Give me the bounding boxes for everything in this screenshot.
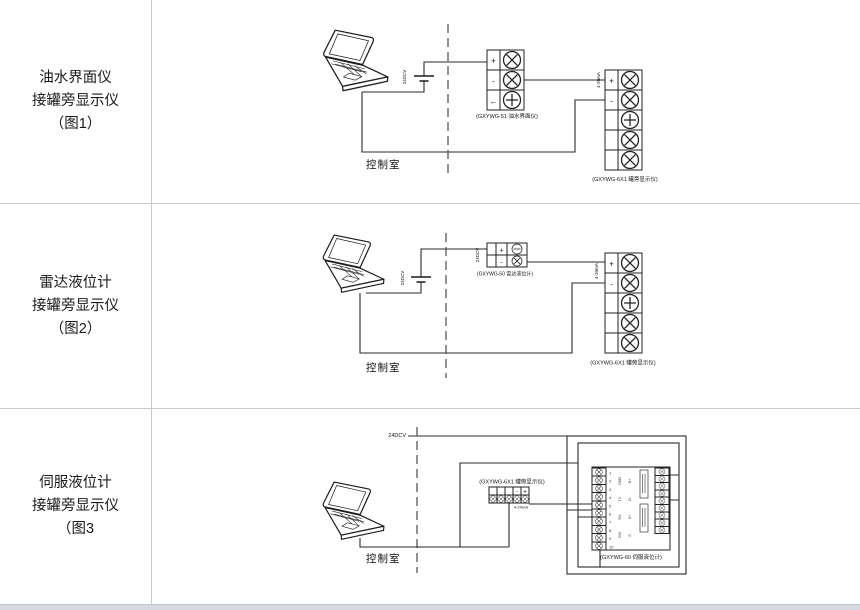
figure-2-title: 雷达液位计 接罐旁显示仪 （图2） (0, 204, 152, 408)
figure-1-title: 油水界面仪 接罐旁显示仪 （图1） (0, 0, 152, 203)
control-room-label: 控制室 (366, 361, 401, 374)
screw-icon (622, 92, 639, 109)
screw-icon (622, 112, 639, 129)
supply-voltage-label: 24DCV (388, 433, 406, 439)
screw-icon (596, 518, 603, 525)
svg-text:24V: 24V (618, 531, 622, 538)
screw-icon (596, 493, 603, 500)
terminal-cell (605, 313, 618, 333)
board-module-box (640, 470, 648, 498)
terminal-cell (487, 255, 496, 267)
signal-range-label: 4-20mA (594, 263, 599, 279)
svg-text:TX: TX (618, 496, 622, 501)
title-line: 伺服液位计 (39, 472, 112, 495)
screw-icon (622, 275, 639, 292)
terminal-cell (605, 130, 618, 150)
terminal-label-plus: + (523, 490, 527, 496)
terminal-cell (605, 293, 618, 313)
board-module-box (640, 504, 648, 532)
row-figure-1: 24DCV + - ← (GXYWG-51 油水界面仪) 4-20mA (0, 0, 860, 204)
terminal-label-minus: - (492, 77, 495, 86)
laptop-icon (324, 30, 388, 91)
screw-icon (622, 152, 639, 169)
title-line: （图1） (50, 113, 102, 136)
terminal-label-plus: + (609, 260, 614, 269)
display-terminal-block: + - (605, 253, 642, 353)
terminal-cell (505, 487, 513, 495)
screw-icon (504, 72, 521, 89)
screw-icon (596, 526, 603, 533)
battery-icon (411, 277, 431, 282)
servo-caption: (GXYWG-60 伺服液位计) (600, 553, 662, 561)
display-terminal-block: + - (605, 70, 642, 170)
screw-icon (512, 244, 522, 254)
terminal-label-plus: + (609, 77, 614, 86)
terminal-screw-strip-left (592, 468, 606, 550)
window-bottom-edge (0, 604, 860, 610)
terminal-cell (605, 110, 618, 130)
wire-laptop-loop (360, 463, 578, 547)
screw-icon (622, 255, 639, 272)
screw-icon (659, 491, 665, 497)
screw-icon (659, 483, 665, 489)
terminal-cell (605, 150, 618, 170)
terminal-label-ground: ← (490, 97, 498, 106)
screw-icon (622, 132, 639, 149)
title-line: 接罐旁显示仪 (32, 90, 119, 113)
wire-power-loop (362, 62, 605, 152)
screw-icon (659, 527, 665, 533)
screw-icon (659, 498, 665, 504)
screw-icon (659, 505, 665, 511)
control-room-label: 控制室 (366, 158, 401, 171)
transmitter-caption: (GXYWG-50 雷达液位计) (477, 271, 533, 278)
screw-icon (596, 543, 603, 550)
transmitter-caption: (GXYWG-51 油水界面仪) (476, 112, 538, 120)
svg-text:GND: GND (618, 477, 622, 485)
terminal-cell (497, 487, 505, 495)
transmitter-terminal-block: + - (487, 243, 527, 267)
display-caption: (GXYWG-6X1 罐旁显示仪) (592, 175, 658, 183)
screw-icon (659, 476, 665, 482)
title-line: 接罐旁显示仪 (32, 495, 119, 518)
display-terminal-block: - + (489, 487, 529, 503)
screw-icon (596, 477, 603, 484)
title-line: 油水界面仪 (39, 67, 112, 90)
screw-icon (596, 534, 603, 541)
terminal-cell (489, 487, 497, 495)
screw-icon (490, 496, 496, 502)
control-room-label: 控制室 (366, 552, 401, 565)
screw-icon (596, 485, 603, 492)
terminal-label-plus: + (491, 57, 496, 66)
servo-terminal-board: 1 2 3 4 5 6 7 8 9 10 GND TX RX 24V D+ (592, 467, 670, 550)
title-line: 接罐旁显示仪 (32, 295, 119, 318)
display-caption: (GXYWG-6X1 罐旁显示仪) (590, 359, 656, 367)
screw-icon (622, 295, 639, 312)
row-figure-3: 24DCV (GXYWG-6X1 罐旁显示仪) (0, 409, 860, 604)
terminal-label-minus: - (610, 280, 613, 289)
screw-icon (514, 496, 520, 502)
screw-icon (659, 469, 665, 475)
screw-icon (512, 256, 522, 266)
battery-voltage-label: 24DCV (400, 271, 405, 286)
screw-icon (622, 335, 639, 352)
transmitter-terminal-block: + - ← (487, 50, 524, 110)
battery-icon (414, 76, 434, 81)
document-page: 24DCV + - ← (GXYWG-51 油水界面仪) 4-20mA (0, 0, 860, 610)
terminal-cell (605, 333, 618, 353)
signal-range-label: 4-20mA (514, 505, 528, 510)
terminal-cell (487, 243, 496, 255)
row-figure-2: 24DCV + - 24DCV (GXYWG-50 雷达液位计) 4-20mA (0, 204, 860, 409)
screw-icon (659, 512, 665, 518)
battery-voltage-label: 24DCV (402, 70, 407, 85)
terminal-label-minus: - (516, 490, 518, 496)
screw-icon (504, 92, 521, 109)
screw-icon (622, 315, 639, 332)
block-voltage-label: 24DCV (475, 248, 480, 263)
terminal-label-plus: + (499, 248, 503, 255)
screw-icon (596, 469, 603, 476)
svg-text:RX: RX (618, 514, 622, 520)
signal-range-label: 4-20mA (596, 72, 601, 88)
figure-3-title: 伺服液位计 接罐旁显示仪 （图3 (0, 409, 152, 604)
screw-icon (596, 510, 603, 517)
title-line: （图2） (50, 318, 102, 341)
terminal-screw-strip-right (655, 468, 669, 534)
display-caption: (GXYWG-6X1 罐旁显示仪) (479, 478, 545, 486)
terminal-label-minus: - (610, 97, 613, 106)
screw-icon (596, 502, 603, 509)
screw-icon (622, 72, 639, 89)
title-line: （图3 (57, 518, 94, 541)
svg-text:D+: D+ (628, 479, 632, 484)
wire-power-loop (360, 249, 605, 353)
laptop-icon (323, 235, 384, 292)
title-line: 雷达液位计 (39, 272, 112, 295)
screw-icon (659, 520, 665, 526)
screw-icon (498, 496, 504, 502)
laptop-icon (323, 482, 384, 539)
svg-text:S+: S+ (628, 515, 632, 519)
svg-text:10: 10 (609, 544, 614, 549)
screw-icon (504, 52, 521, 69)
screw-icon (522, 496, 528, 502)
screw-icon (506, 496, 512, 502)
